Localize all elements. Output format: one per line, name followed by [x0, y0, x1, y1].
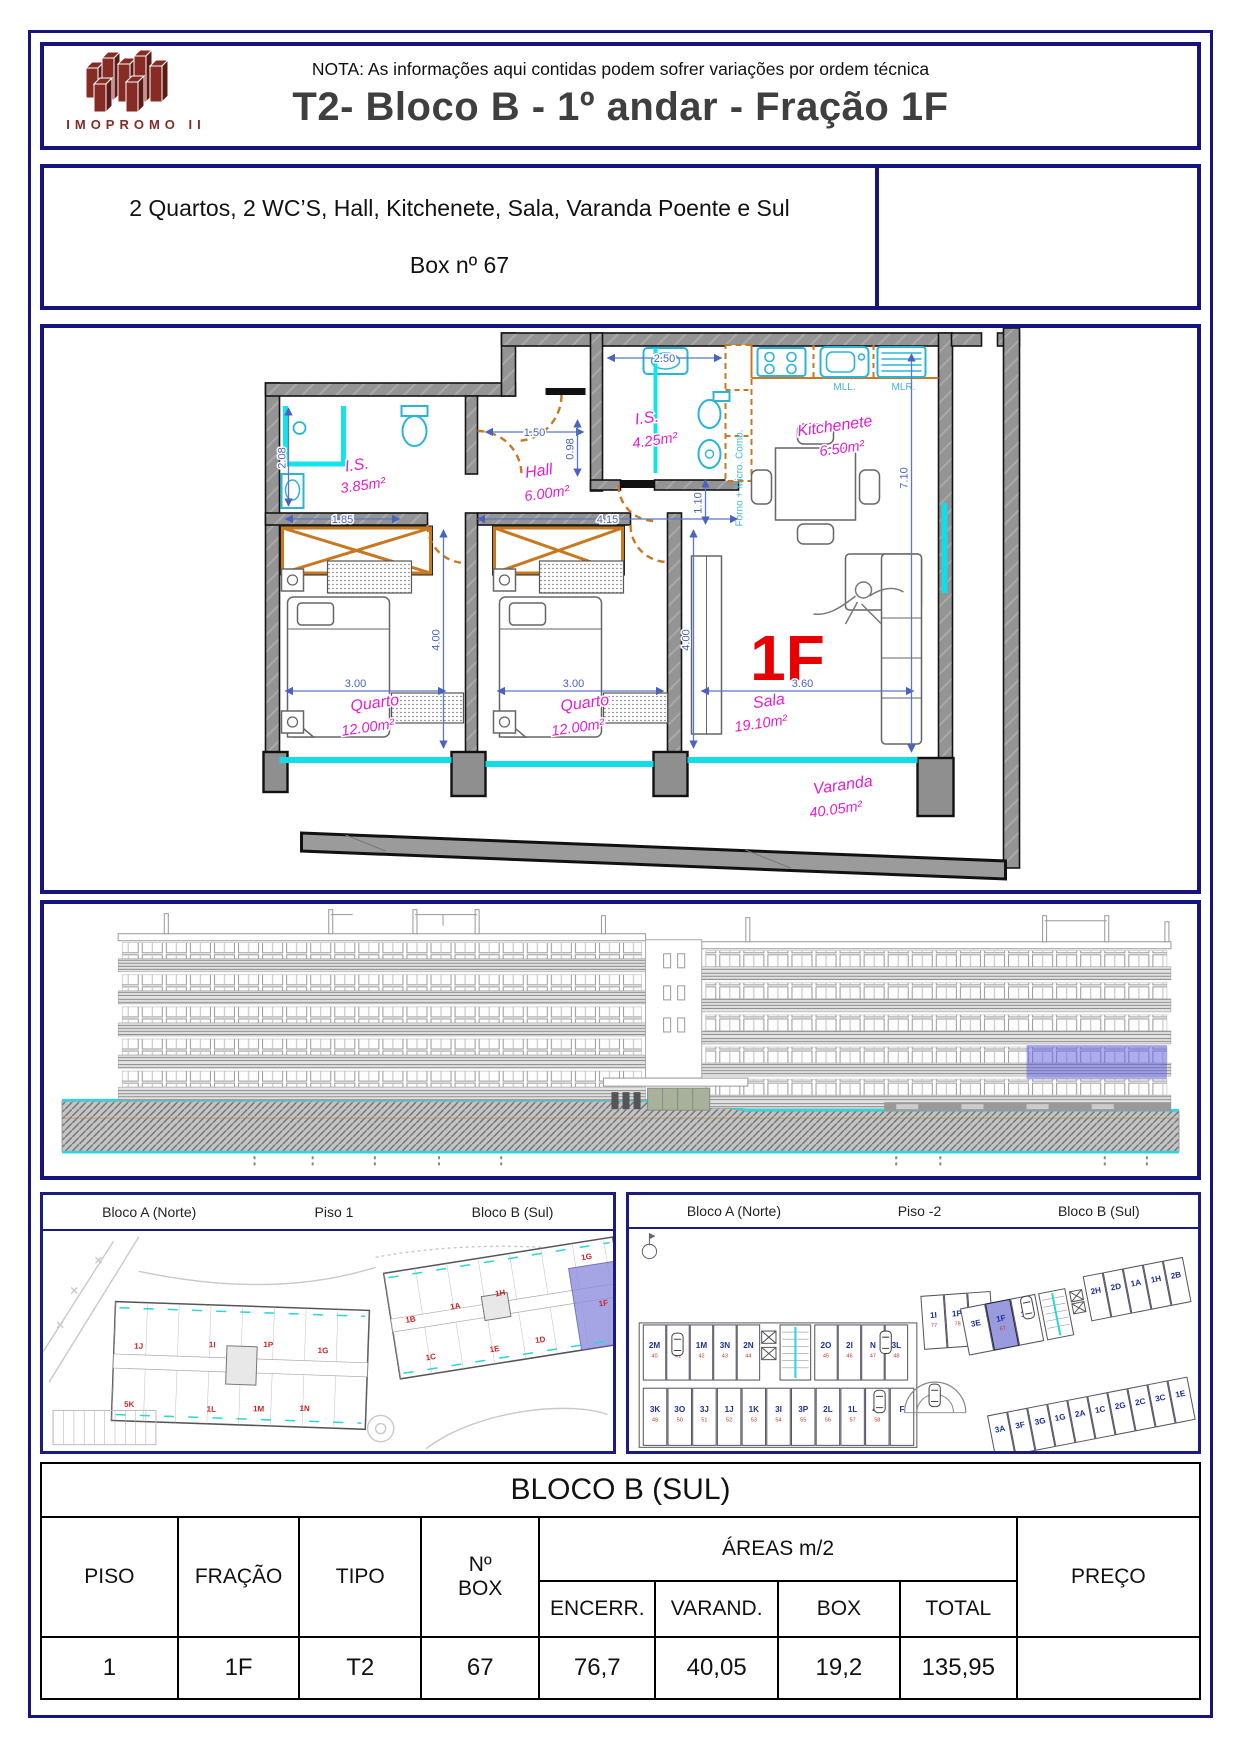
svg-text:7.10: 7.10	[899, 467, 911, 488]
svg-text:4.00: 4.00	[431, 629, 443, 650]
parking-stall-label: 3N	[719, 1341, 730, 1350]
parking-stall: 3N43	[713, 1324, 735, 1379]
svg-text:0.98: 0.98	[565, 438, 577, 459]
toilet-tank	[402, 406, 428, 416]
unit-label: 1G	[317, 1346, 328, 1355]
areas-table-box: BLOCO B (SUL) PISO FRAÇÃO TIPO Nº BOX ÁR…	[40, 1462, 1201, 1700]
right-building	[702, 916, 1171, 1112]
living-room-group: 1F	[692, 554, 922, 744]
washing-machine-icon	[878, 347, 926, 377]
col-header-nbox: Nº BOX	[421, 1517, 539, 1637]
parking-stall-number: 48	[893, 1353, 899, 1359]
parking-stall: F	[890, 1388, 913, 1445]
parking-stall-number: 46	[846, 1353, 852, 1359]
unit-label: 1J	[134, 1342, 143, 1351]
unit-label: 1C	[425, 1352, 437, 1363]
piso1-panel-header: Bloco A (Norte) Piso 1 Bloco B (Sul)	[43, 1195, 613, 1231]
parking-stall-label: N	[869, 1341, 875, 1350]
cell-tipo: T2	[299, 1637, 421, 1699]
room-name: I.S.	[344, 455, 370, 475]
areas-table: BLOCO B (SUL) PISO FRAÇÃO TIPO Nº BOX ÁR…	[40, 1462, 1201, 1700]
left-building	[118, 910, 645, 1100]
room-area: 19.10m²	[733, 712, 789, 735]
parking-stall-label: 3P	[798, 1405, 809, 1414]
svg-text:1.50: 1.50	[524, 427, 545, 439]
parking-stall-number: 78	[954, 1321, 961, 1327]
parking-stall-label: 2L	[823, 1405, 833, 1414]
description-side-cell	[879, 168, 1197, 306]
sink-label: MLL.	[833, 382, 855, 393]
parking-stall-number: 49	[651, 1417, 657, 1423]
car-icon	[880, 1331, 891, 1353]
parking-stall-number: 77	[930, 1322, 937, 1328]
bloco-b-label: Bloco B (Sul)	[1058, 1203, 1140, 1219]
col-header-box: BOX	[778, 1581, 900, 1637]
parking-stall-number: 54	[775, 1417, 781, 1423]
unit-label: 1P	[263, 1340, 274, 1349]
col-header-areas: ÁREAS m/2	[539, 1517, 1016, 1581]
svg-text:3.00: 3.00	[345, 678, 366, 690]
col-header-encerr: ENCERR.	[539, 1581, 655, 1637]
col-header-tipo: TIPO	[299, 1517, 421, 1637]
room-name: Varanda	[812, 773, 874, 798]
car-icon	[929, 1384, 940, 1406]
parking-stall: 3K49	[643, 1388, 666, 1445]
cell-encerr: 76,7	[539, 1637, 655, 1699]
parking-stall-number: 53	[750, 1417, 756, 1423]
col-header-piso: PISO	[41, 1517, 178, 1637]
parking-stall: 3I54	[766, 1388, 789, 1445]
room-name: Kitchenete	[796, 413, 873, 440]
svg-text:2.50: 2.50	[654, 353, 675, 365]
col-header-nbox-line1: Nº	[423, 1553, 537, 1577]
parking-stall-label: 1F	[995, 1313, 1006, 1324]
site-plan-piso1: 1J1I1P1G5K1L1M1N 1B1A1H1G1C1E1D1F	[43, 1231, 613, 1451]
parking-stall-label: 1J	[724, 1405, 733, 1414]
parking-stall-label: 3O	[674, 1405, 685, 1414]
shower-icon	[286, 406, 344, 464]
parking-stall-label: F	[899, 1405, 904, 1414]
bloco-a-label: Bloco A (Norte)	[687, 1203, 781, 1219]
elevation-drawing	[44, 904, 1197, 1176]
unit-label: 1B	[405, 1315, 417, 1326]
parking-stall-number: 52	[726, 1417, 732, 1423]
room-area: 3.85m²	[339, 475, 387, 497]
floor-plan-box: MLL. MLR. Forno + Micro. Comb.	[40, 324, 1201, 894]
svg-text:1.85: 1.85	[332, 514, 353, 526]
toilet2-icon	[699, 400, 721, 428]
bidet-icon	[699, 440, 721, 468]
parking-lot	[53, 1411, 156, 1445]
unit-label: 1A	[450, 1301, 462, 1312]
parking-stall-number: 51	[701, 1417, 707, 1423]
parking-stall: 1K53	[742, 1388, 765, 1445]
svg-text:3.00: 3.00	[563, 678, 584, 690]
bloco-b-label: Bloco B (Sul)	[472, 1204, 554, 1220]
cell-fracao: 1F	[178, 1637, 300, 1699]
col-header-varand: VARAND.	[655, 1581, 778, 1637]
description-box: 2 Quartos, 2 WC’S, Hall, Kitchenete, Sal…	[40, 164, 1201, 310]
cell-varand: 40,05	[655, 1637, 778, 1699]
parking-stall-label: 2N	[743, 1341, 754, 1350]
page-title: T2- Bloco B - 1º andar - Fração 1F	[44, 85, 1197, 130]
unit-label: 1I	[209, 1340, 216, 1349]
unit-label: 1N	[299, 1404, 310, 1413]
parking-stall-label: 3F	[1014, 1420, 1025, 1431]
parking-stall-number: 55	[800, 1417, 806, 1423]
col-header-fracao: FRAÇÃO	[178, 1517, 300, 1637]
cell-box-area: 19,2	[778, 1637, 900, 1699]
piso2-panel: Bloco A (Norte) Piso -2 Bloco B (Sul) 2M…	[626, 1192, 1202, 1454]
parking-stall-number: 67	[999, 1325, 1006, 1332]
parking-stall-number: 47	[869, 1353, 875, 1359]
piso1-panel: Bloco A (Norte) Piso 1 Bloco B (Sul)	[40, 1192, 616, 1454]
parking-stall-label: 2I	[846, 1341, 853, 1350]
parking-stall: 2N44	[737, 1324, 759, 1379]
survey-ticks	[255, 1156, 1147, 1168]
cell-total: 135,95	[900, 1637, 1017, 1699]
parking-stall-label: 2O	[820, 1341, 831, 1350]
unit-label-big: 1F	[750, 622, 825, 694]
table-row: 1 1F T2 67 76,7 40,05 19,2 135,95	[41, 1637, 1200, 1699]
col-header-total: TOTAL	[900, 1581, 1017, 1637]
parking-stall: 3J51	[692, 1388, 715, 1445]
parking-stall: 3O50	[667, 1388, 690, 1445]
parking-stall-number: 40	[651, 1353, 657, 1359]
cell-box: 67	[421, 1637, 539, 1699]
parking-stall-number: 50	[676, 1417, 682, 1423]
piso-label: Piso -2	[898, 1203, 942, 1219]
stove-icon	[758, 348, 806, 376]
description-box-number: Box nº 67	[44, 252, 875, 279]
table-title: BLOCO B (SUL)	[41, 1463, 1200, 1517]
parking-stall: 2I46	[838, 1324, 860, 1379]
svg-text:4.00: 4.00	[681, 629, 693, 650]
description-text-cell: 2 Quartos, 2 WC’S, Hall, Kitchenete, Sal…	[44, 168, 879, 306]
unit-highlight	[1027, 1045, 1167, 1079]
parking-stall-number: 42	[698, 1353, 704, 1359]
parking-stall: 1M42	[690, 1324, 712, 1379]
oven-label: Forno + Micro. Comb.	[735, 430, 746, 527]
svg-text:1.10: 1.10	[693, 492, 705, 513]
parking-stall: 2O45	[814, 1324, 836, 1379]
north-arrow-icon	[642, 1233, 656, 1259]
piso2-panel-header: Bloco A (Norte) Piso -2 Bloco B (Sul)	[629, 1195, 1199, 1229]
floor-plan-drawing: MLL. MLR. Forno + Micro. Comb.	[44, 328, 1197, 890]
parking-stall-label: 3J	[699, 1405, 708, 1414]
cell-preco	[1017, 1637, 1200, 1699]
page-frame: IMOPROMO II NOTA: As informações aqui co…	[28, 30, 1213, 1718]
parapet	[302, 833, 1006, 879]
unit-label: 1G	[581, 1252, 593, 1263]
garage-plan-piso2: 2M401O411M423N432N44 2O452I46N473L48 3K4…	[629, 1229, 1199, 1451]
company-logo: IMOPROMO II	[58, 48, 214, 132]
parking-stall-label: 3L	[891, 1341, 901, 1350]
parking-stall-label: 1K	[748, 1405, 759, 1414]
unit-label: 1H	[494, 1288, 506, 1299]
logo-text: IMOPROMO II	[58, 117, 214, 132]
car-icon	[873, 1390, 884, 1412]
svg-text:2.08: 2.08	[277, 447, 289, 468]
piso-label: Piso 1	[315, 1204, 354, 1220]
unit-label: 1F	[598, 1298, 609, 1308]
room-area: 4.25m²	[631, 430, 679, 452]
car-icon	[671, 1333, 682, 1355]
parking-stall-number: 44	[745, 1353, 751, 1359]
parking-stall: 1I77	[920, 1294, 946, 1349]
parking-stall-label: 1M	[695, 1341, 707, 1350]
room-area: 6.00m²	[523, 483, 571, 505]
garage-b-wing: 3E1F671D 2H2D1A1H2B 3A3F3G1G2A1C2G2C3C1E	[958, 1257, 1198, 1451]
cell-piso: 1	[41, 1637, 178, 1699]
col-header-nbox-line2: BOX	[423, 1577, 537, 1601]
unit-label: 1M	[253, 1405, 265, 1414]
unit-label: 1D	[534, 1335, 546, 1346]
unit-label: 1L	[206, 1405, 216, 1414]
parking-stall: 3P55	[791, 1388, 814, 1445]
room-name: I.S.	[634, 408, 660, 428]
bloco-b-footprint: 1B1A1H1G1C1E1D1F	[384, 1236, 613, 1379]
parking-stall-label: 3I	[775, 1405, 782, 1414]
unit-label: 5K	[124, 1400, 135, 1409]
parking-stall-label: 3K	[649, 1405, 660, 1414]
svg-text:4.15: 4.15	[597, 514, 618, 526]
room-area: 40.05m²	[808, 798, 864, 821]
sofa	[882, 554, 922, 744]
elevation-box	[40, 900, 1201, 1180]
dining-table	[776, 448, 856, 520]
parking-stall-number: 58	[874, 1417, 880, 1423]
description-rooms: 2 Quartos, 2 WC’S, Hall, Kitchenete, Sal…	[44, 195, 875, 222]
parking-stall: 2L56	[816, 1388, 839, 1445]
parking-stall-label: 1L	[847, 1405, 857, 1414]
room-name: Hall	[524, 461, 554, 482]
parking-stall: 2M40	[643, 1324, 665, 1379]
technical-note: NOTA: As informações aqui contidas podem…	[44, 59, 1197, 80]
room-name: Sala	[752, 691, 786, 712]
parking-stall: 1L57	[840, 1388, 863, 1445]
col-header-preco: PREÇO	[1017, 1517, 1200, 1637]
header-box: IMOPROMO II NOTA: As informações aqui co…	[40, 42, 1201, 150]
toilet-icon	[403, 416, 427, 446]
parking-stall-number: 56	[824, 1417, 830, 1423]
parking-stall-number: 43	[721, 1353, 727, 1359]
parking-stall-number: 45	[822, 1353, 828, 1359]
parking-stall-label: 1I	[929, 1310, 936, 1319]
logo-cubes-icon	[58, 48, 186, 116]
parking-stall: 1J52	[717, 1388, 740, 1445]
bloco-a-label: Bloco A (Norte)	[102, 1204, 196, 1220]
parking-stall-number: 57	[849, 1417, 855, 1423]
svg-text:3.60: 3.60	[792, 678, 813, 690]
parking-stall-label: 2M	[648, 1341, 660, 1350]
